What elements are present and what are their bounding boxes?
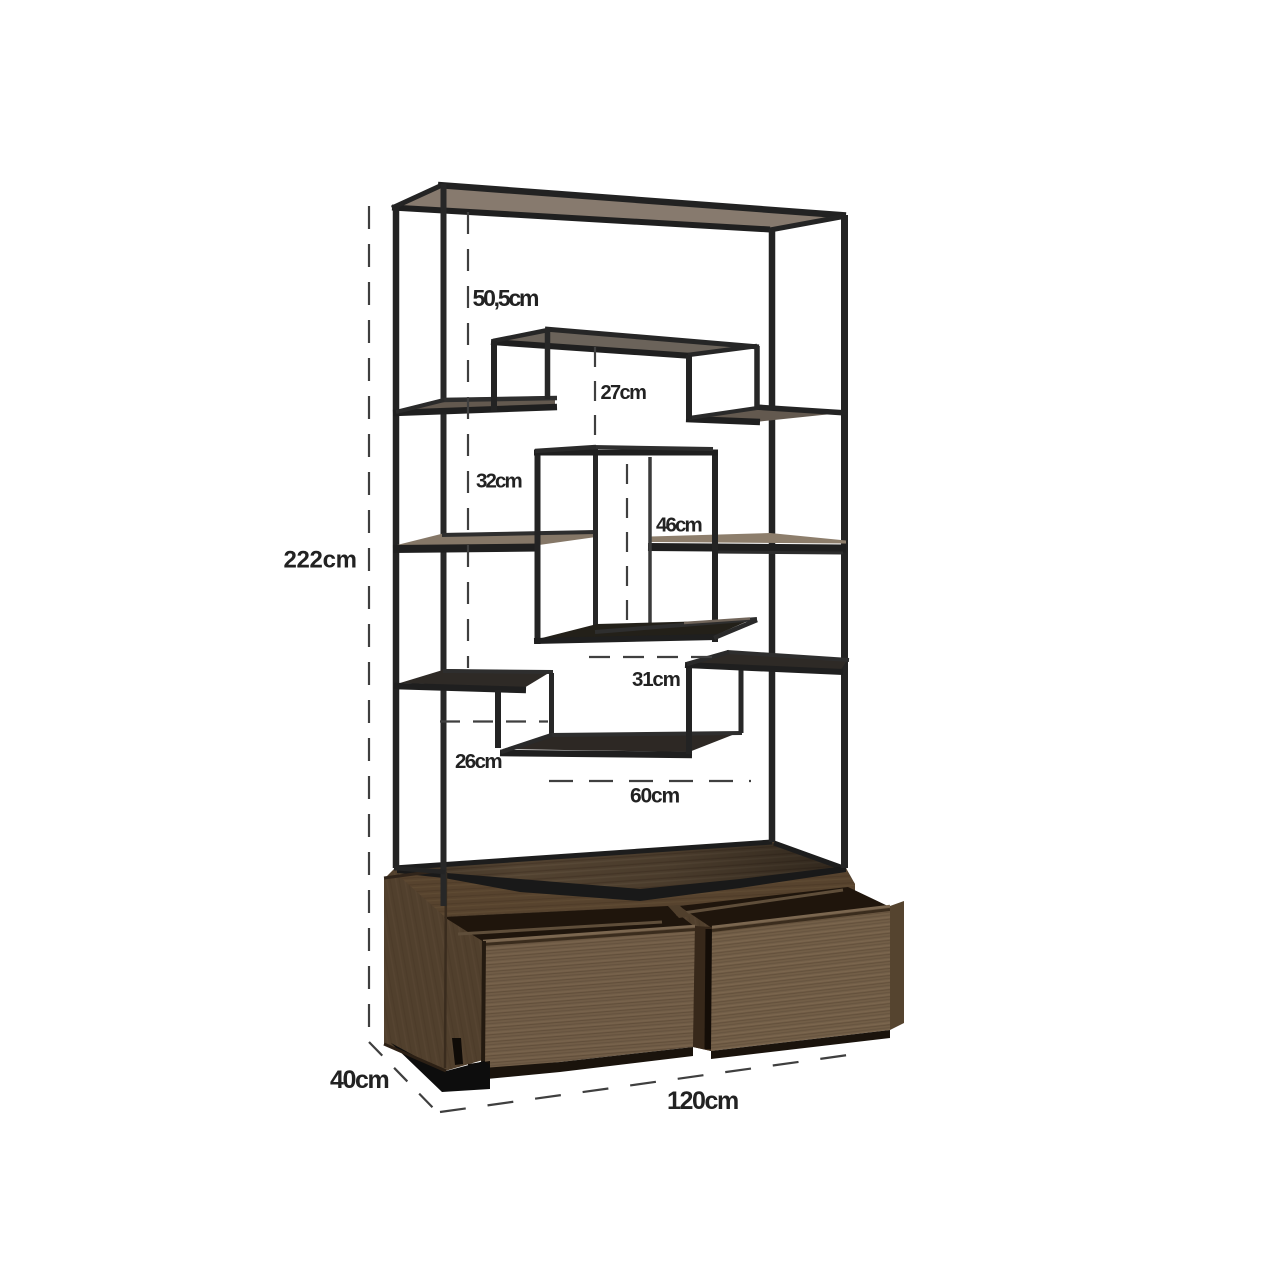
svg-text:40cm: 40cm	[330, 1066, 389, 1094]
svg-text:27cm: 27cm	[601, 382, 647, 404]
svg-text:26cm: 26cm	[455, 750, 501, 773]
svg-text:120cm: 120cm	[667, 1087, 738, 1115]
svg-text:31cm: 31cm	[632, 668, 680, 691]
svg-text:32cm: 32cm	[476, 470, 522, 493]
svg-text:46cm: 46cm	[656, 514, 702, 537]
svg-text:60cm: 60cm	[630, 785, 679, 808]
svg-text:222cm: 222cm	[284, 547, 357, 574]
svg-text:50,5cm: 50,5cm	[473, 285, 540, 311]
